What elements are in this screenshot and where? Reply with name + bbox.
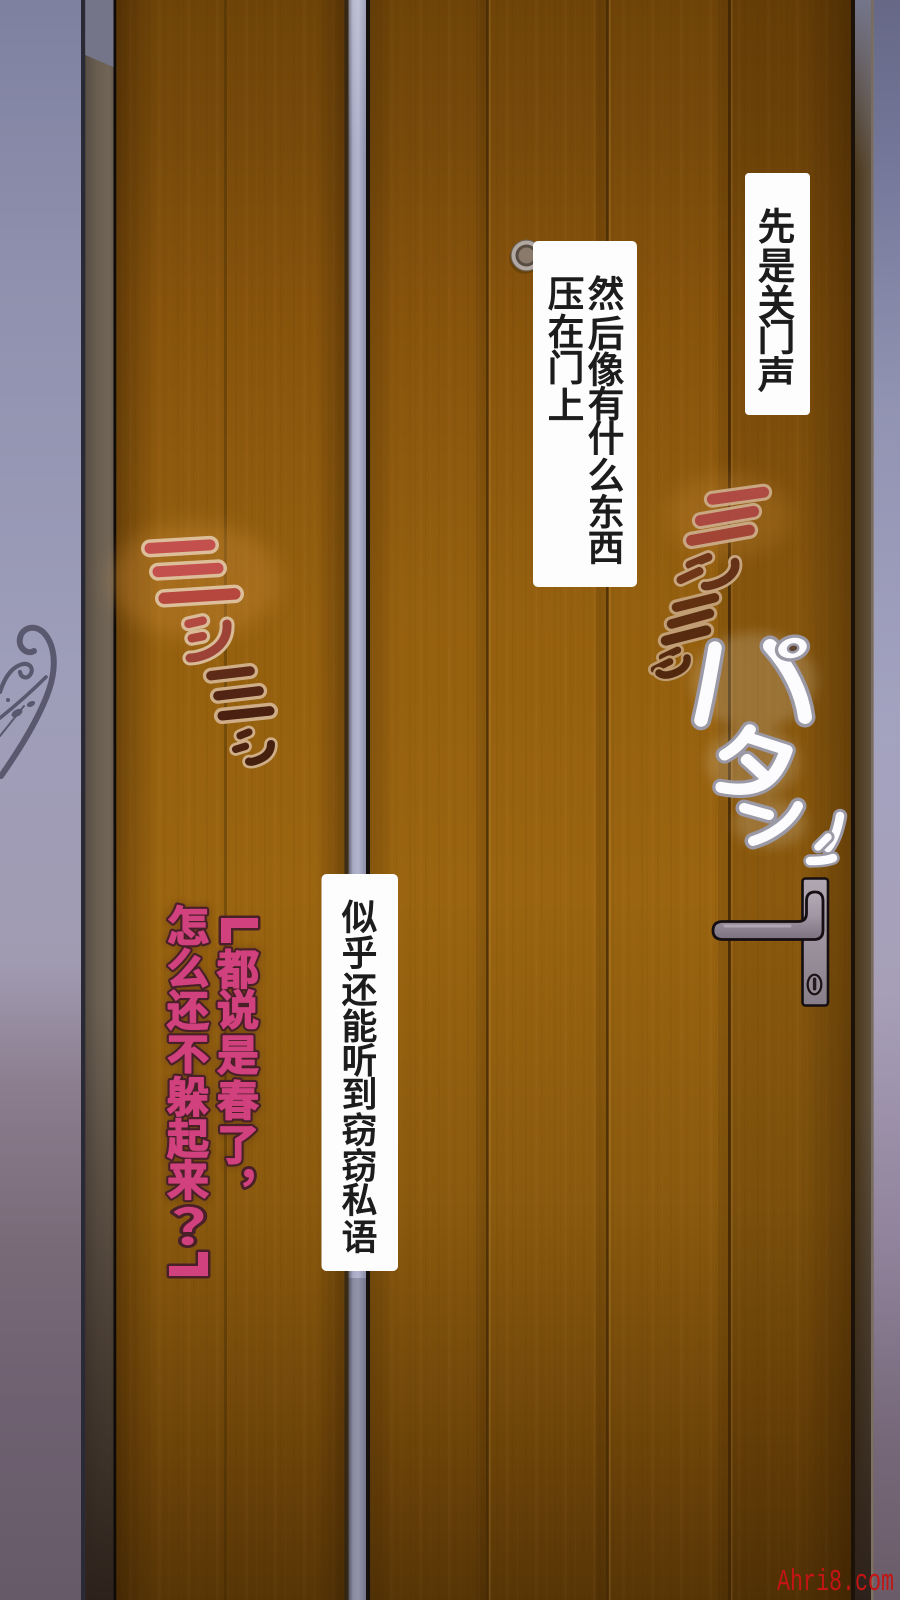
svg-text:Ahri8.com: Ahri8.com — [777, 1565, 894, 1600]
